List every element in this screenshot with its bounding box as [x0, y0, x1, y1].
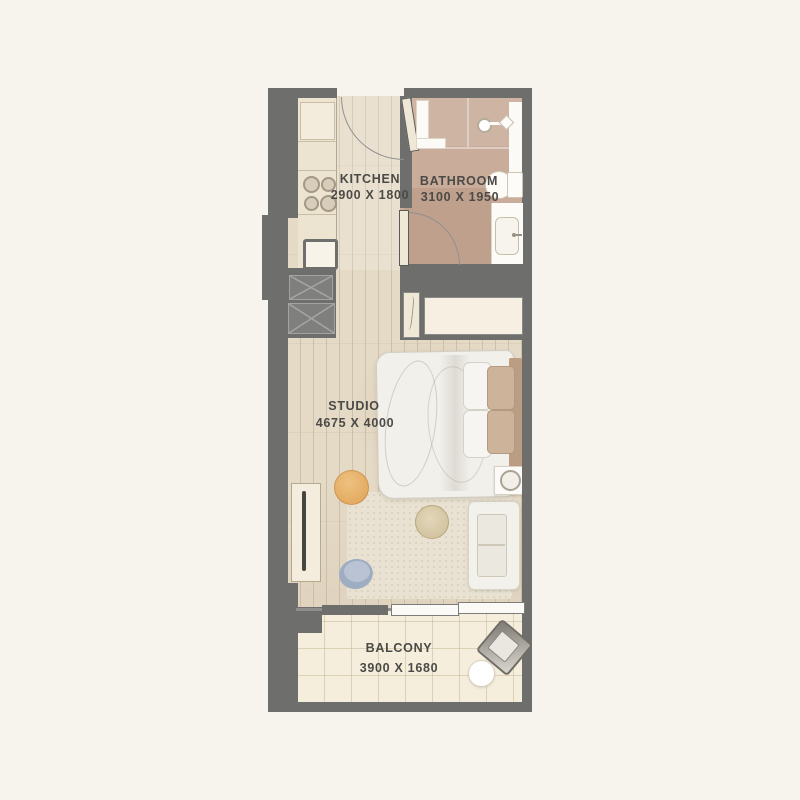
sliding-door-icon [391, 604, 459, 616]
shaft-icon [289, 275, 333, 300]
sliding-door-icon [322, 605, 388, 615]
shower-screen [416, 138, 446, 149]
bathroom-door-icon [399, 210, 409, 266]
fridge-icon [300, 102, 335, 140]
bathroom-size-label: 3100 X 1950 [421, 190, 500, 204]
wall [268, 583, 298, 712]
stove-icon [304, 196, 319, 211]
pillow-icon [487, 366, 515, 410]
tile-joint-line [467, 96, 469, 147]
wall [404, 88, 532, 98]
kitchen-size-label: 2900 X 1800 [331, 188, 410, 202]
wall [522, 88, 532, 600]
studio-size-label: 4675 X 4000 [316, 416, 395, 430]
counter-divider [298, 214, 336, 215]
built-in-closet [424, 297, 523, 335]
balcony-size-label: 3900 X 1680 [360, 661, 439, 675]
faucet-line [516, 234, 522, 236]
shaft-icon [288, 303, 335, 334]
tv-console-icon [291, 483, 321, 582]
counter-divider [298, 141, 336, 142]
toilet-tank [507, 172, 523, 198]
bathroom-label: BATHROOM [420, 174, 498, 188]
studio-label: STUDIO [328, 399, 379, 413]
counter-divider [298, 170, 336, 171]
wall [268, 702, 532, 712]
sofa-cushion-icon [477, 514, 507, 577]
sofa-seam [478, 544, 505, 546]
pouf-top-icon [344, 561, 370, 582]
balcony-table-icon [468, 660, 495, 687]
shower-icon [477, 118, 492, 133]
tv-icon [302, 491, 306, 571]
lamp-icon [500, 470, 521, 491]
stove-icon [303, 176, 320, 193]
sliding-door-icon [458, 602, 525, 614]
coffee-table-icon [415, 505, 449, 539]
floor-plan: KITCHEN 2900 X 1800 BATHROOM 3100 X 1950… [0, 0, 800, 800]
ottoman-icon [334, 470, 369, 505]
balcony-label: BALCONY [366, 641, 433, 655]
kitchen-label: KITCHEN [340, 172, 400, 186]
wall [268, 88, 298, 218]
kitchen-sink-icon [303, 239, 338, 270]
pillow-icon [487, 410, 515, 454]
